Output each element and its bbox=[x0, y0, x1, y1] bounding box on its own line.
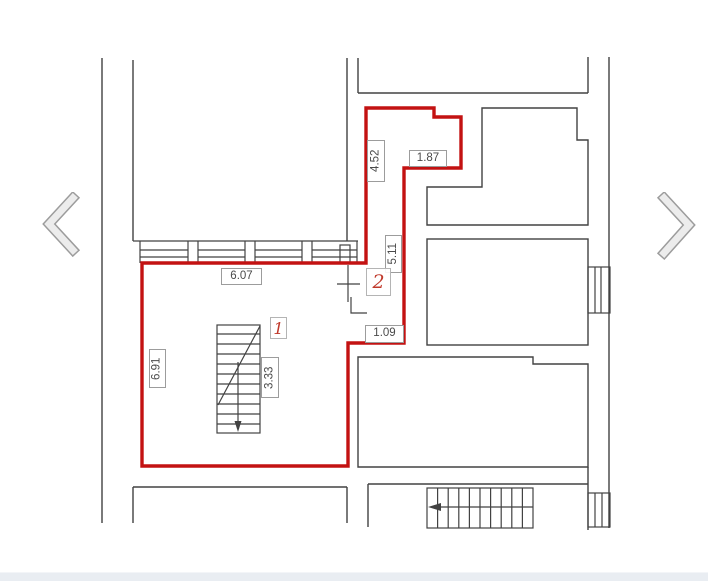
stair-arrow-left bbox=[428, 503, 441, 511]
chevron-left-icon bbox=[40, 192, 84, 262]
room-number-value: 1 bbox=[273, 319, 283, 338]
room-number-value: 2 bbox=[372, 271, 384, 293]
door-symbols bbox=[337, 265, 367, 313]
dimension-label-room2-bottom: 1.09 bbox=[365, 325, 404, 343]
staircase-lower bbox=[427, 488, 533, 528]
chevron-right-icon bbox=[654, 192, 698, 262]
dimension-value: 1.09 bbox=[373, 328, 395, 340]
dimension-label-room2-left: 4.52 bbox=[367, 140, 385, 182]
dimension-label-room1-left: 6.91 bbox=[149, 349, 166, 388]
dimension-value: 3.33 bbox=[264, 366, 276, 388]
stair-arrow-down bbox=[235, 421, 242, 432]
dimension-value: 4.52 bbox=[370, 150, 382, 172]
dimension-label-room1-top: 6.07 bbox=[221, 268, 262, 285]
room-number-2: 2 bbox=[366, 268, 391, 296]
wall-lines bbox=[102, 57, 609, 530]
next-button[interactable] bbox=[654, 192, 698, 262]
floorplan-viewer: 6.07 4.52 1.87 5.11 1.09 6.91 3.33 1 2 bbox=[0, 0, 708, 581]
dimension-value: 6.91 bbox=[152, 357, 164, 379]
dimension-label-room2-top: 1.87 bbox=[409, 150, 447, 167]
dimension-value: 1.87 bbox=[417, 153, 439, 165]
prev-button[interactable] bbox=[40, 192, 84, 262]
room-number-1: 1 bbox=[270, 317, 287, 339]
staircase-room1 bbox=[217, 325, 260, 433]
dimension-value: 5.11 bbox=[388, 243, 400, 265]
dimension-label-room1-stairs: 3.33 bbox=[261, 357, 279, 398]
floor-plan-drawing bbox=[0, 0, 708, 581]
dimension-value: 6.07 bbox=[230, 271, 252, 283]
bottom-page-strip bbox=[0, 572, 708, 581]
